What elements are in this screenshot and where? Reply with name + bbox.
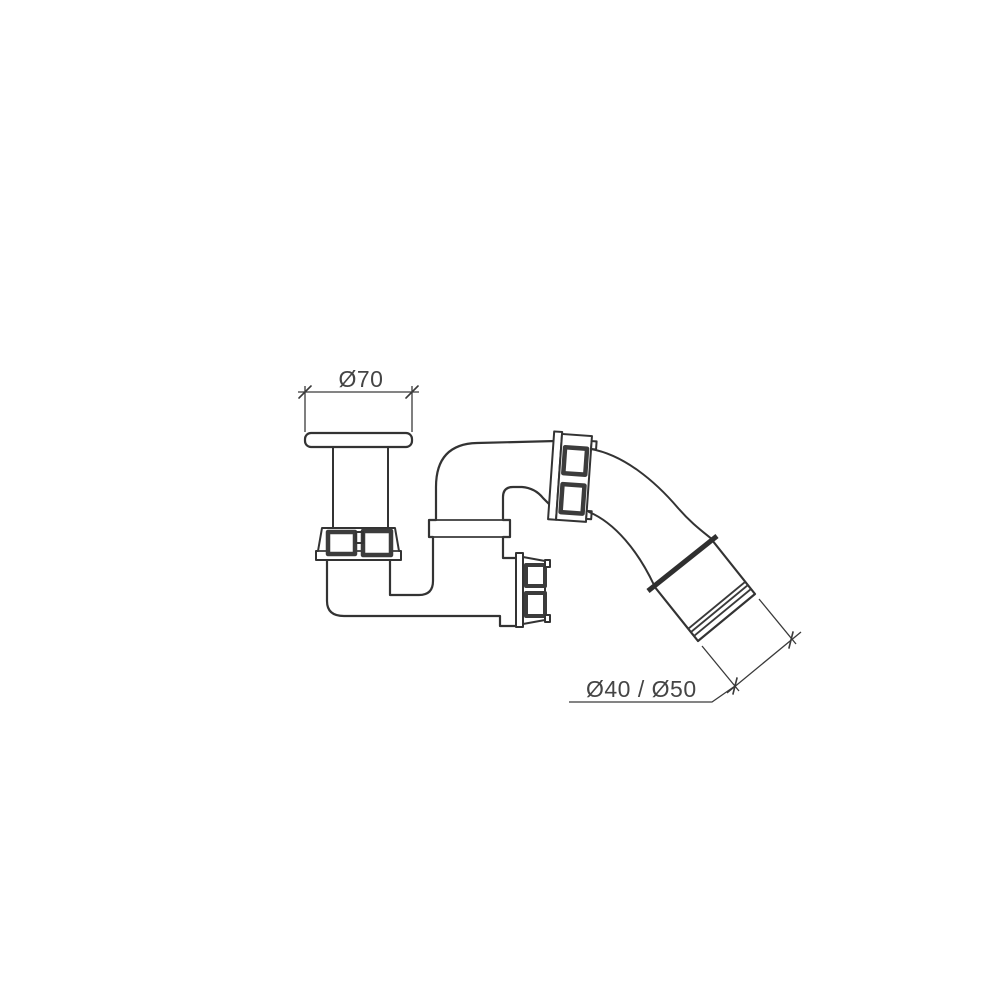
nut-facet	[526, 565, 545, 586]
nut-facet	[526, 593, 545, 616]
sleeve-body	[654, 540, 755, 641]
nut-flange-plate	[516, 553, 523, 627]
outlet-pipe-top-edge	[591, 449, 713, 540]
nut-facet	[561, 484, 585, 513]
nut-facet	[328, 532, 355, 554]
dimension-flange: Ø70	[298, 366, 419, 432]
outlet-pipe-bottom-edge	[589, 512, 654, 585]
nut-nub	[545, 615, 550, 622]
siphon-technical-drawing: Ø70	[0, 0, 1000, 1000]
extension-line-lower	[702, 646, 739, 691]
inlet-union-nut	[316, 528, 401, 560]
outlet-sleeve	[648, 536, 755, 641]
dimension-label-outlet: Ø40 / Ø50	[586, 676, 697, 702]
nut-facet	[363, 531, 391, 555]
dimension-label-flange: Ø70	[339, 366, 384, 392]
drain-flange	[305, 433, 412, 447]
elbow-union-nut	[548, 431, 597, 522]
nut-facet	[563, 447, 587, 474]
extension-line-upper	[759, 599, 796, 644]
drawing-canvas: Ø70	[0, 0, 1000, 1000]
nut-nub	[545, 560, 550, 567]
side-outlet-nut	[516, 553, 550, 627]
